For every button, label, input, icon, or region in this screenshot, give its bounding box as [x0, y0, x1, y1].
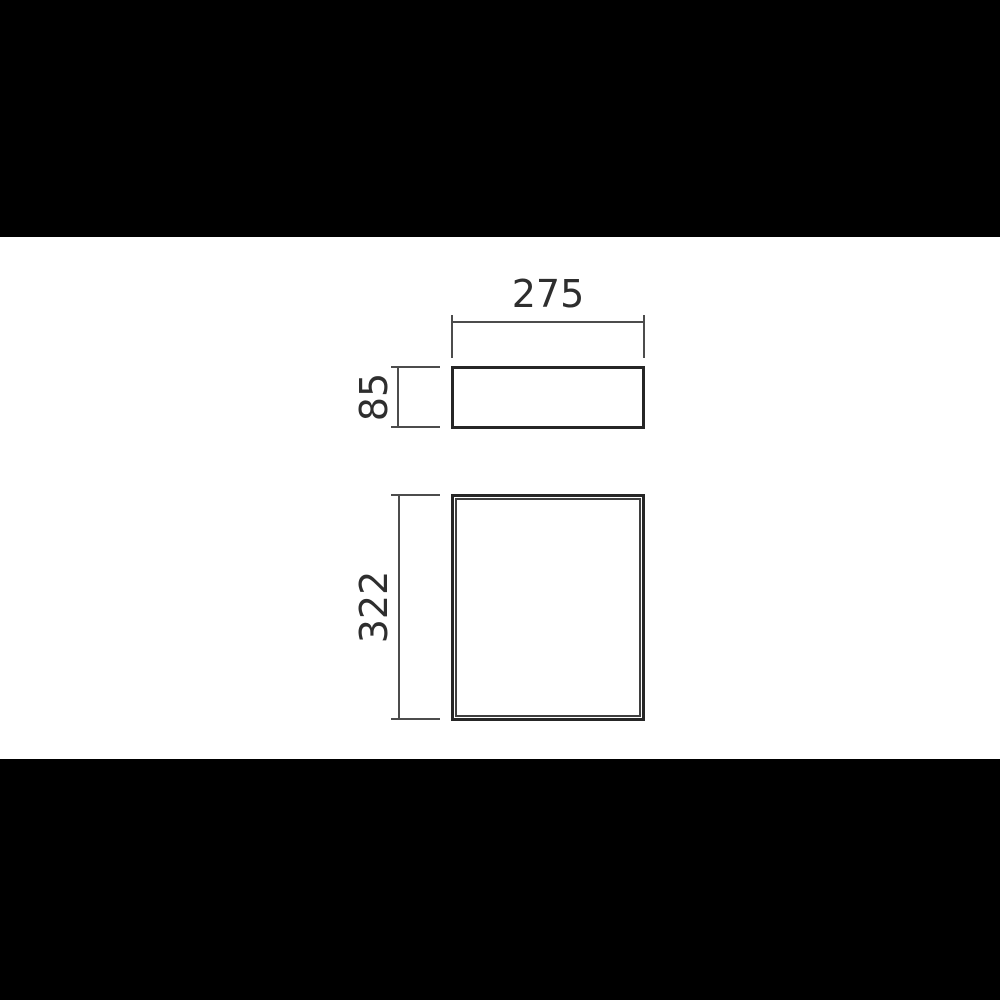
side-height-dimension-extension-top	[391, 366, 440, 368]
front-height-dimension-label: 322	[354, 555, 394, 659]
letterbox-top	[0, 0, 1000, 237]
front-view-inner-line	[455, 498, 641, 717]
letterbox-bottom	[0, 759, 1000, 1000]
side-height-dimension-line	[397, 366, 399, 428]
front-height-dimension-extension-top	[391, 494, 440, 496]
top-view-outline	[451, 366, 645, 429]
front-height-dimension-line	[398, 494, 400, 720]
side-height-dimension-extension-bottom	[391, 426, 440, 428]
width-dimension-label: 275	[488, 274, 608, 314]
drawing-canvas: 275 85 322	[0, 0, 1000, 1000]
width-dimension-extension-left	[451, 315, 453, 358]
front-view-outline	[451, 494, 645, 721]
width-dimension-extension-right	[643, 315, 645, 358]
front-height-dimension-extension-bottom	[391, 718, 440, 720]
width-dimension-line	[451, 321, 645, 323]
side-height-dimension-label: 85	[354, 361, 394, 433]
